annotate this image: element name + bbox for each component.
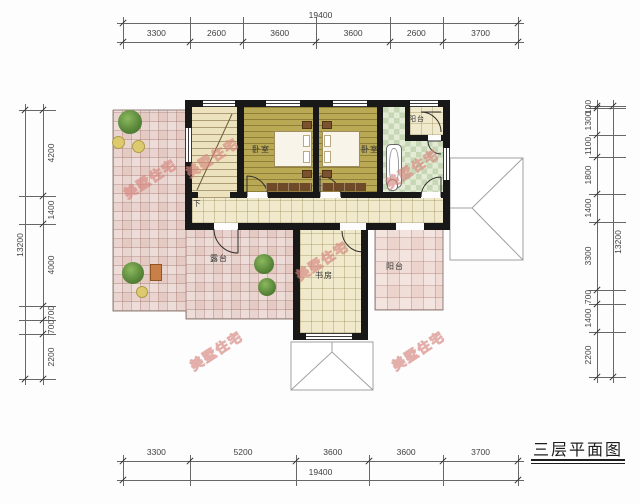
dim-label: 5200: [234, 447, 253, 457]
dim-label: 1400: [583, 198, 593, 217]
wall: [237, 107, 244, 198]
wall: [410, 135, 428, 141]
dim-label: 3600: [397, 447, 416, 457]
pillow: [303, 151, 310, 163]
nightstand: [322, 121, 332, 129]
wall: [235, 100, 266, 107]
wall: [367, 100, 410, 107]
dim-label: 1400: [46, 200, 56, 219]
terrace-floor-bottom: [186, 230, 293, 319]
wardrobe-left: [266, 183, 312, 191]
dim-label: 4200: [46, 143, 56, 162]
window: [333, 100, 367, 107]
bedroom-right-label: 卧室: [361, 144, 379, 155]
wall: [361, 230, 368, 340]
nightstand: [302, 121, 312, 129]
wall: [341, 192, 421, 198]
wall: [441, 135, 443, 141]
roof-right: [450, 158, 523, 260]
roof-bottom-hips: [291, 342, 373, 390]
wall: [313, 107, 319, 198]
window: [266, 100, 300, 107]
dim-extension: [443, 17, 444, 49]
watermark: 美墅住宅: [388, 326, 449, 375]
wall: [238, 223, 340, 230]
dim-total-line: [25, 104, 26, 385]
dim-label: 3700: [471, 447, 490, 457]
dim-label: 1400: [583, 309, 593, 328]
wall: [230, 192, 247, 198]
terrace-label: 露台: [210, 253, 228, 264]
dim-extension: [390, 17, 391, 49]
dim-label: 700: [46, 320, 56, 334]
dim-label: 1800: [583, 166, 593, 185]
dim-extension: [316, 17, 317, 49]
dim-label: 3600: [344, 28, 363, 38]
title-underline-thin: [531, 463, 625, 464]
plant-pot: [136, 286, 148, 298]
dim-extension: [243, 17, 244, 49]
dim-label: 13200: [613, 230, 623, 254]
dim-label: 3300: [147, 28, 166, 38]
nightstand: [302, 170, 312, 178]
dim-label: 3600: [270, 28, 289, 38]
dim-extension: [19, 334, 56, 335]
window: [306, 333, 352, 340]
window: [185, 128, 192, 162]
window: [443, 148, 450, 180]
wall: [352, 333, 368, 340]
plant-pot: [112, 136, 125, 149]
balcony-right-label: 阳台: [386, 261, 404, 272]
watermark: 美墅住宅: [186, 326, 247, 375]
bedroom-left-label: 卧室: [252, 144, 270, 155]
dim-label: 3600: [323, 447, 342, 457]
dim-line: [43, 104, 44, 385]
dim-label: 1300: [583, 112, 593, 131]
roof-right-hips: [450, 158, 523, 260]
dim-label: 2200: [583, 345, 593, 364]
dim-extension: [190, 17, 191, 49]
dim-line: [117, 461, 525, 462]
dim-label: 700: [583, 290, 593, 304]
dim-label: 700: [46, 306, 56, 320]
window: [203, 100, 235, 107]
plant: [122, 262, 144, 284]
wall: [293, 230, 300, 340]
dim-label: 2200: [46, 347, 56, 366]
wall: [185, 223, 214, 230]
balcony-top-label: 阳台: [409, 114, 425, 124]
wardrobe-right: [322, 183, 366, 191]
wall: [443, 100, 450, 148]
drawing-title: 三层平面图: [531, 436, 625, 460]
wall: [185, 100, 192, 128]
hallway-floor: [192, 198, 443, 223]
dim-label: 4000: [46, 256, 56, 275]
dim-label: 3300: [583, 246, 593, 265]
dim-label: 19400: [309, 10, 333, 20]
nightstand: [322, 170, 332, 178]
dim-label: 2600: [407, 28, 426, 38]
plant: [258, 278, 276, 296]
floorplan-sheet: 卧室 卧室 阳台 露台 书房 阳台 下 三层平面图 美墅住宅美墅住宅美墅住宅美墅…: [0, 0, 640, 504]
bed-right: [322, 131, 360, 167]
dim-label: 19400: [309, 467, 333, 477]
pillow: [324, 151, 331, 163]
plant: [118, 110, 142, 134]
pillow: [324, 135, 331, 147]
wall: [441, 192, 443, 198]
pillow: [303, 135, 310, 147]
dim-total-line: [117, 23, 525, 24]
wall: [293, 333, 306, 340]
dim-extension: [19, 224, 56, 225]
dim-line: [597, 100, 598, 383]
terrace-chair: [150, 264, 162, 281]
plant-pot: [132, 140, 145, 153]
dim-label: 3300: [147, 447, 166, 457]
roof-bottom: [291, 342, 373, 390]
wall: [366, 223, 396, 230]
window: [410, 100, 438, 107]
dim-label: 3700: [471, 28, 490, 38]
stairs-down-label: 下: [193, 198, 202, 209]
plant: [254, 254, 274, 274]
wall: [424, 223, 450, 230]
dim-label: 13200: [15, 233, 25, 257]
title-underline-thick: [531, 459, 625, 461]
dim-extension: [19, 196, 56, 197]
dim-label: 2600: [207, 28, 226, 38]
dim-total-line: [117, 480, 525, 481]
dim-line: [117, 42, 525, 43]
wall: [300, 100, 333, 107]
wall: [268, 192, 320, 198]
dim-label: 1100: [583, 137, 593, 155]
bed-left: [274, 131, 312, 167]
